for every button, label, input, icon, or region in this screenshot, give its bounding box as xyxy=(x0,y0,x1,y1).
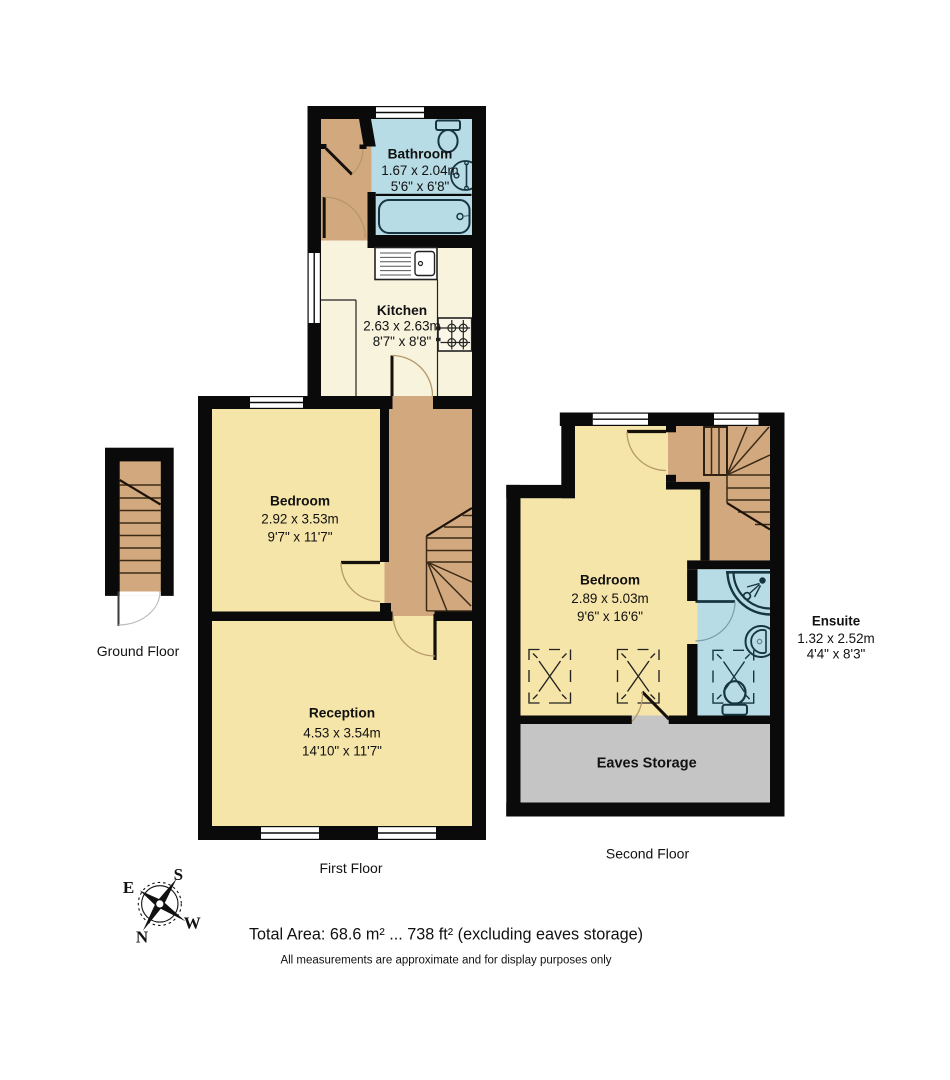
svg-text:Second Floor: Second Floor xyxy=(606,846,690,862)
svg-text:Kitchen: Kitchen xyxy=(377,303,427,318)
svg-text:2.92 x 3.53m: 2.92 x 3.53m xyxy=(261,512,338,527)
svg-text:Ensuite: Ensuite xyxy=(812,614,860,629)
svg-text:2.89 x 5.03m: 2.89 x 5.03m xyxy=(571,591,648,606)
svg-text:Total Area: 68.6 m² ... 738 ft: Total Area: 68.6 m² ... 738 ft² (excludi… xyxy=(249,926,643,944)
svg-text:2.63 x 2.63m: 2.63 x 2.63m xyxy=(363,319,440,334)
svg-text:Reception: Reception xyxy=(309,706,375,721)
svg-text:8'7" x 8'8": 8'7" x 8'8" xyxy=(373,334,432,349)
svg-text:Bedroom: Bedroom xyxy=(580,573,640,588)
svg-text:9'7" x 11'7": 9'7" x 11'7" xyxy=(268,530,333,545)
svg-text:Ground Floor: Ground Floor xyxy=(97,643,180,659)
svg-text:Eaves Storage: Eaves Storage xyxy=(597,756,697,772)
svg-text:4'4" x 8'3": 4'4" x 8'3" xyxy=(807,647,866,662)
svg-text:14'10" x 11'7": 14'10" x 11'7" xyxy=(302,744,382,759)
svg-text:W: W xyxy=(184,913,201,932)
svg-text:4.53 x 3.54m: 4.53 x 3.54m xyxy=(303,726,380,741)
svg-text:Bathroom: Bathroom xyxy=(388,146,453,161)
svg-text:1.32 x 2.52m: 1.32 x 2.52m xyxy=(797,631,874,646)
svg-text:5'6" x 6'8": 5'6" x 6'8" xyxy=(391,179,450,194)
svg-text:First Floor: First Floor xyxy=(320,860,383,876)
svg-text:N: N xyxy=(136,928,149,947)
svg-text:Bedroom: Bedroom xyxy=(270,494,330,509)
svg-text:1.67 x 2.04m: 1.67 x 2.04m xyxy=(381,163,458,178)
svg-text:All measurements are approxima: All measurements are approximate and for… xyxy=(280,955,611,967)
svg-text:9'6" x 16'6": 9'6" x 16'6" xyxy=(577,609,643,624)
svg-text:S: S xyxy=(174,865,183,884)
svg-text:E: E xyxy=(123,878,134,897)
